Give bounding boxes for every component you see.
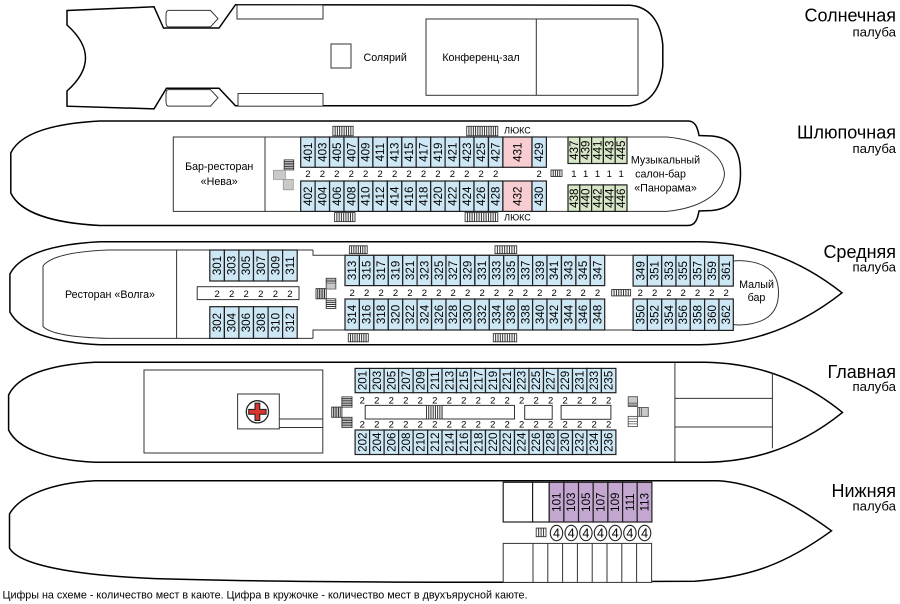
svg-text:2: 2 [534, 395, 539, 406]
svg-text:Солярий: Солярий [364, 52, 407, 64]
svg-text:бар: бар [748, 292, 766, 304]
svg-text:208: 208 [400, 433, 413, 452]
svg-text:209: 209 [414, 371, 427, 390]
svg-text:2: 2 [393, 288, 398, 299]
svg-text:2: 2 [461, 395, 466, 406]
svg-text:2: 2 [244, 289, 249, 300]
svg-text:2: 2 [363, 169, 368, 180]
svg-text:318: 318 [375, 305, 388, 324]
svg-text:417: 417 [418, 143, 431, 162]
svg-text:333: 333 [491, 261, 504, 280]
svg-text:2: 2 [432, 420, 437, 431]
svg-text:2: 2 [451, 288, 456, 299]
svg-text:419: 419 [432, 143, 445, 162]
svg-text:2: 2 [476, 420, 481, 431]
svg-text:232: 232 [574, 433, 587, 452]
svg-text:323: 323 [418, 261, 431, 280]
svg-text:227: 227 [545, 371, 558, 390]
svg-text:222: 222 [501, 433, 514, 452]
svg-text:223: 223 [516, 371, 529, 390]
svg-text:111: 111 [624, 493, 637, 511]
svg-text:2: 2 [435, 169, 440, 180]
svg-text:331: 331 [476, 261, 489, 280]
svg-text:Шлюпочная: Шлюпочная [797, 122, 896, 142]
svg-text:2: 2 [494, 288, 499, 299]
svg-text:1: 1 [571, 169, 576, 180]
svg-text:210: 210 [414, 433, 427, 452]
svg-text:236: 236 [603, 433, 616, 452]
svg-text:311: 311 [284, 256, 297, 274]
svg-text:203: 203 [371, 371, 384, 390]
svg-text:2: 2 [229, 289, 234, 300]
svg-text:2: 2 [360, 420, 365, 431]
svg-text:320: 320 [390, 305, 403, 324]
svg-text:Ресторан «Волга»: Ресторан «Волга» [65, 289, 155, 301]
svg-text:220: 220 [487, 433, 500, 452]
svg-text:317: 317 [375, 261, 388, 280]
svg-text:306: 306 [240, 313, 253, 332]
svg-text:309: 309 [269, 256, 282, 275]
svg-text:427: 427 [490, 143, 503, 162]
svg-text:305: 305 [240, 256, 253, 275]
svg-text:2: 2 [580, 288, 585, 299]
svg-text:430: 430 [533, 187, 546, 206]
svg-text:428: 428 [490, 187, 503, 206]
svg-text:423: 423 [461, 143, 474, 162]
svg-text:105: 105 [580, 493, 593, 512]
svg-text:4: 4 [597, 527, 604, 541]
svg-text:2: 2 [652, 288, 657, 299]
svg-text:347: 347 [592, 261, 605, 280]
svg-text:225: 225 [530, 371, 543, 390]
svg-text:2: 2 [436, 288, 441, 299]
svg-text:213: 213 [443, 371, 456, 390]
svg-text:351: 351 [649, 261, 662, 280]
svg-text:4: 4 [568, 527, 575, 541]
svg-text:2: 2 [403, 420, 408, 431]
svg-text:2: 2 [523, 288, 528, 299]
svg-text:207: 207 [400, 371, 413, 390]
svg-text:4: 4 [553, 527, 560, 541]
svg-text:2: 2 [592, 395, 597, 406]
svg-text:216: 216 [458, 433, 471, 452]
svg-text:2: 2 [537, 169, 542, 180]
svg-text:103: 103 [565, 493, 578, 512]
svg-text:332: 332 [476, 305, 489, 324]
svg-text:2: 2 [392, 169, 397, 180]
svg-text:2: 2 [666, 288, 671, 299]
svg-text:2: 2 [389, 420, 394, 431]
svg-text:412: 412 [374, 187, 387, 206]
svg-text:2: 2 [305, 169, 310, 180]
svg-text:429: 429 [533, 143, 546, 162]
svg-text:350: 350 [634, 305, 647, 324]
svg-text:4: 4 [626, 527, 633, 541]
svg-text:палуба: палуба [853, 260, 897, 275]
svg-text:357: 357 [692, 261, 705, 280]
svg-text:Цифры на схеме - количество ме: Цифры на схеме - количество мест в каюте… [3, 590, 528, 602]
svg-text:«Нева»: «Нева» [201, 176, 238, 188]
svg-text:палуба: палуба [853, 25, 897, 40]
svg-text:2: 2 [432, 395, 437, 406]
svg-text:1: 1 [583, 169, 588, 180]
svg-text:349: 349 [634, 261, 647, 280]
svg-text:2: 2 [606, 420, 611, 431]
svg-text:303: 303 [226, 256, 239, 275]
svg-text:2: 2 [534, 420, 539, 431]
svg-text:218: 218 [472, 433, 485, 452]
svg-text:2: 2 [519, 420, 524, 431]
svg-text:4: 4 [641, 527, 648, 541]
svg-text:322: 322 [404, 305, 417, 324]
svg-text:234: 234 [588, 432, 601, 452]
svg-text:2: 2 [258, 289, 263, 300]
svg-text:334: 334 [491, 304, 504, 324]
svg-text:2: 2 [505, 395, 510, 406]
svg-text:404: 404 [316, 186, 329, 206]
svg-text:402: 402 [302, 187, 315, 206]
svg-text:352: 352 [649, 305, 662, 324]
svg-text:2: 2 [505, 420, 510, 431]
svg-text:302: 302 [211, 313, 224, 332]
svg-text:2: 2 [378, 288, 383, 299]
svg-text:2: 2 [447, 420, 452, 431]
svg-text:4: 4 [612, 527, 619, 541]
svg-text:413: 413 [389, 143, 402, 162]
svg-text:326: 326 [433, 305, 446, 324]
svg-text:346: 346 [577, 305, 590, 324]
svg-text:Малый: Малый [739, 279, 774, 291]
svg-text:Солнечная: Солнечная [804, 6, 896, 26]
svg-text:2: 2 [606, 395, 611, 406]
svg-text:212: 212 [429, 433, 442, 452]
svg-text:229: 229 [559, 371, 572, 390]
svg-text:313: 313 [346, 261, 359, 280]
svg-text:ЛЮКС: ЛЮКС [504, 125, 531, 135]
svg-text:445: 445 [615, 141, 628, 160]
svg-text:337: 337 [519, 261, 532, 280]
svg-text:2: 2 [577, 395, 582, 406]
svg-text:406: 406 [331, 187, 344, 206]
svg-text:2: 2 [447, 395, 452, 406]
svg-text:2: 2 [377, 169, 382, 180]
svg-text:2: 2 [548, 420, 553, 431]
svg-text:2: 2 [508, 288, 513, 299]
svg-text:1: 1 [595, 169, 600, 180]
svg-text:2: 2 [695, 288, 700, 299]
svg-text:2: 2 [287, 289, 292, 300]
svg-text:359: 359 [706, 261, 719, 280]
svg-text:2: 2 [350, 288, 355, 299]
svg-text:214: 214 [443, 432, 456, 452]
svg-text:307: 307 [255, 256, 268, 275]
svg-text:420: 420 [432, 187, 445, 206]
svg-text:362: 362 [720, 305, 733, 324]
svg-text:233: 233 [588, 371, 601, 390]
svg-text:324: 324 [418, 304, 431, 324]
svg-text:205: 205 [385, 371, 398, 390]
svg-text:4: 4 [582, 527, 589, 541]
svg-text:2: 2 [418, 420, 423, 431]
svg-text:201: 201 [356, 371, 369, 390]
svg-text:2: 2 [490, 395, 495, 406]
svg-text:2: 2 [214, 289, 219, 300]
svg-text:301: 301 [211, 256, 224, 275]
svg-text:2: 2 [577, 420, 582, 431]
svg-text:358: 358 [692, 305, 705, 324]
svg-text:329: 329 [462, 261, 475, 280]
svg-text:2: 2 [638, 288, 643, 299]
svg-text:407: 407 [345, 143, 358, 162]
svg-text:336: 336 [505, 305, 518, 324]
svg-text:353: 353 [663, 261, 676, 280]
svg-text:408: 408 [345, 187, 358, 206]
svg-text:410: 410 [360, 187, 373, 206]
svg-text:312: 312 [284, 313, 297, 332]
svg-text:2: 2 [421, 169, 426, 180]
svg-text:2: 2 [548, 395, 553, 406]
svg-text:2: 2 [450, 169, 455, 180]
svg-text:425: 425 [475, 143, 488, 162]
svg-text:2: 2 [349, 169, 354, 180]
svg-text:345: 345 [577, 261, 590, 280]
svg-text:2: 2 [476, 395, 481, 406]
svg-text:226: 226 [530, 433, 543, 452]
svg-text:2: 2 [493, 169, 498, 180]
svg-text:2: 2 [709, 288, 714, 299]
svg-text:2: 2 [479, 169, 484, 180]
svg-text:446: 446 [615, 189, 628, 208]
svg-text:2: 2 [566, 288, 571, 299]
svg-text:2: 2 [592, 420, 597, 431]
svg-text:2: 2 [461, 420, 466, 431]
svg-text:415: 415 [403, 143, 416, 162]
svg-text:335: 335 [505, 261, 518, 280]
svg-text:2: 2 [465, 288, 470, 299]
svg-text:228: 228 [545, 433, 558, 452]
svg-text:422: 422 [446, 187, 459, 206]
svg-text:231: 231 [574, 371, 587, 390]
svg-text:416: 416 [403, 187, 416, 206]
svg-text:101: 101 [551, 493, 564, 512]
svg-text:2: 2 [374, 420, 379, 431]
svg-text:2: 2 [360, 395, 365, 406]
svg-text:330: 330 [462, 305, 475, 324]
svg-text:палуба: палуба [853, 498, 897, 513]
svg-text:325: 325 [433, 261, 446, 280]
svg-text:235: 235 [603, 371, 616, 390]
svg-text:217: 217 [472, 371, 485, 390]
svg-text:2: 2 [537, 288, 542, 299]
svg-text:2: 2 [595, 288, 600, 299]
svg-text:2: 2 [334, 169, 339, 180]
svg-text:418: 418 [418, 187, 431, 206]
svg-text:431: 431 [511, 143, 524, 162]
svg-text:Бар-ресторан: Бар-ресторан [185, 161, 253, 173]
svg-text:палуба: палуба [853, 141, 897, 156]
svg-text:2: 2 [681, 288, 686, 299]
svg-text:2: 2 [407, 288, 412, 299]
svg-text:414: 414 [389, 186, 402, 206]
svg-text:314: 314 [346, 304, 359, 324]
svg-text:341: 341 [548, 261, 561, 280]
svg-text:426: 426 [475, 187, 488, 206]
svg-text:2: 2 [490, 420, 495, 431]
svg-text:211: 211 [429, 371, 442, 389]
svg-text:403: 403 [316, 143, 329, 162]
svg-text:405: 405 [331, 143, 344, 162]
svg-text:2: 2 [418, 395, 423, 406]
svg-text:2: 2 [552, 288, 557, 299]
svg-text:354: 354 [663, 304, 676, 324]
svg-text:113: 113 [639, 493, 652, 511]
svg-text:316: 316 [361, 305, 374, 324]
svg-text:328: 328 [447, 305, 460, 324]
svg-text:2: 2 [563, 395, 568, 406]
svg-text:224: 224 [516, 432, 529, 452]
svg-text:356: 356 [677, 305, 690, 324]
svg-text:355: 355 [677, 261, 690, 280]
svg-text:Музыкальный: Музыкальный [631, 154, 700, 166]
svg-text:221: 221 [501, 371, 514, 390]
svg-text:421: 421 [446, 143, 459, 162]
svg-text:308: 308 [255, 313, 268, 332]
svg-text:1: 1 [607, 169, 612, 180]
svg-text:«Панорама»: «Панорама» [634, 182, 697, 194]
svg-text:339: 339 [534, 261, 547, 280]
svg-text:1: 1 [618, 169, 623, 180]
svg-text:2: 2 [273, 289, 278, 300]
svg-text:338: 338 [519, 305, 532, 324]
svg-text:палуба: палуба [853, 379, 897, 394]
svg-text:340: 340 [534, 305, 547, 324]
svg-text:310: 310 [269, 313, 282, 332]
svg-text:109: 109 [609, 493, 622, 512]
svg-text:321: 321 [404, 261, 417, 280]
svg-text:315: 315 [361, 261, 374, 280]
svg-text:432: 432 [511, 187, 524, 206]
svg-text:2: 2 [374, 395, 379, 406]
svg-text:Конференц-зал: Конференц-зал [442, 52, 519, 64]
svg-text:2: 2 [479, 288, 484, 299]
svg-text:304: 304 [226, 312, 239, 332]
svg-text:2: 2 [563, 420, 568, 431]
svg-text:2: 2 [389, 395, 394, 406]
svg-text:2: 2 [320, 169, 325, 180]
svg-text:2: 2 [364, 288, 369, 299]
svg-text:344: 344 [563, 304, 576, 324]
svg-text:409: 409 [360, 143, 373, 162]
svg-text:342: 342 [548, 305, 561, 324]
svg-text:327: 327 [447, 261, 460, 280]
svg-text:2: 2 [406, 169, 411, 180]
svg-text:салон-бар: салон-бар [635, 168, 686, 180]
svg-text:401: 401 [302, 143, 315, 162]
svg-text:361: 361 [720, 261, 733, 280]
svg-text:2: 2 [723, 288, 728, 299]
svg-text:ЛЮКС: ЛЮКС [504, 212, 531, 222]
svg-text:215: 215 [458, 371, 471, 390]
svg-text:319: 319 [390, 261, 403, 280]
svg-text:230: 230 [559, 433, 572, 452]
svg-text:2: 2 [422, 288, 427, 299]
svg-text:2: 2 [403, 395, 408, 406]
svg-text:202: 202 [356, 433, 369, 452]
svg-text:206: 206 [385, 433, 398, 452]
svg-text:343: 343 [563, 261, 576, 280]
svg-text:360: 360 [706, 305, 719, 324]
svg-text:219: 219 [487, 371, 500, 390]
svg-text:2: 2 [464, 169, 469, 180]
svg-text:204: 204 [371, 432, 384, 452]
svg-text:107: 107 [595, 493, 608, 512]
svg-text:2: 2 [519, 395, 524, 406]
svg-text:424: 424 [461, 186, 474, 206]
svg-text:348: 348 [592, 305, 605, 324]
svg-text:411: 411 [374, 143, 387, 161]
